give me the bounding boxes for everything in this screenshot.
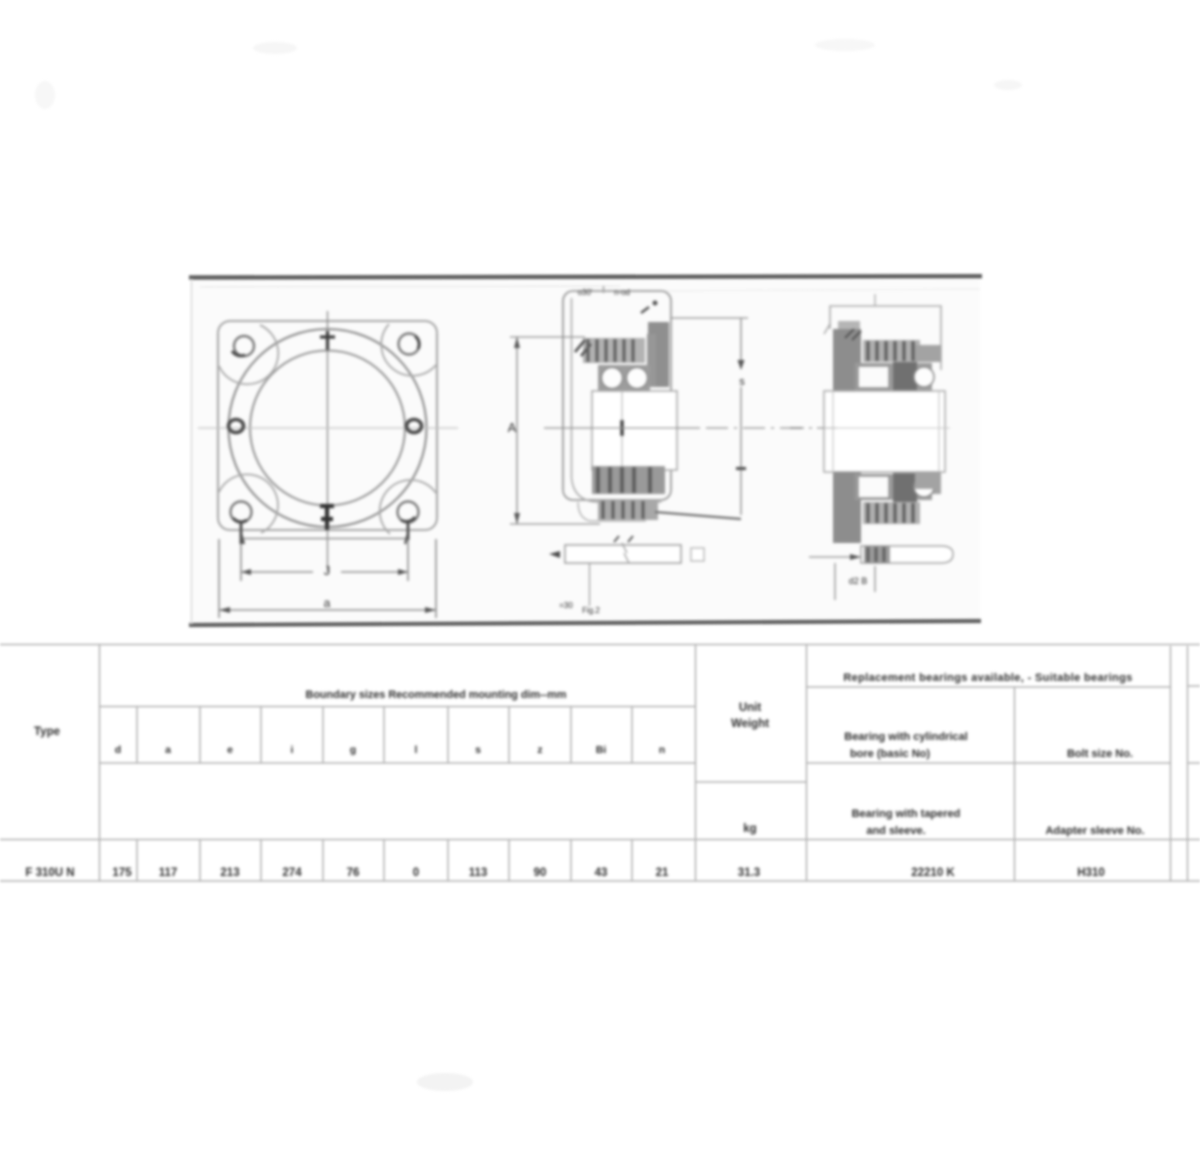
svg-text:Bearing with cylindrical: Bearing with cylindrical (844, 731, 967, 743)
svg-text:J: J (324, 563, 331, 578)
svg-text:90: 90 (534, 867, 547, 879)
svg-text:s: s (475, 744, 481, 756)
svg-text:274: 274 (282, 867, 302, 879)
svg-text:l: l (415, 744, 418, 756)
svg-text:n-od: n-od (614, 288, 630, 297)
svg-text:=30: =30 (559, 601, 573, 610)
svg-text:A: A (508, 420, 517, 435)
svg-text:76: 76 (347, 867, 360, 879)
svg-text:s: s (739, 376, 745, 388)
svg-text:31.3: 31.3 (738, 867, 760, 879)
svg-text:Weight: Weight (731, 718, 769, 730)
svg-text:Adapter sleeve No.: Adapter sleeve No. (1045, 825, 1144, 837)
svg-text:0: 0 (413, 867, 419, 879)
svg-text:kg: kg (743, 823, 756, 835)
svg-text:d2 B: d2 B (849, 576, 868, 586)
svg-text:21: 21 (656, 867, 669, 879)
svg-text:n: n (659, 744, 665, 756)
svg-text:117: 117 (159, 867, 178, 879)
svg-text:a: a (324, 596, 331, 610)
svg-text:F 310U N: F 310U N (25, 867, 74, 879)
svg-text:43: 43 (595, 867, 608, 879)
svg-text:Unit: Unit (739, 702, 762, 714)
svg-text:Bolt size No.: Bolt size No. (1067, 748, 1133, 760)
svg-text:Replacement bearings available: Replacement bearings available, - Suitab… (843, 672, 1132, 684)
svg-text:Fig.2: Fig.2 (582, 606, 600, 615)
svg-text:Boundary sizes Recommended mo: Boundary sizes Recommended mounting dim-… (306, 689, 567, 701)
svg-text:z: z (537, 744, 542, 756)
svg-text:g: g (350, 744, 356, 756)
svg-text:H310: H310 (1077, 867, 1105, 879)
svg-text:d: d (115, 744, 121, 756)
svg-text:175: 175 (112, 867, 132, 879)
svg-text:22210 K: 22210 K (911, 867, 955, 879)
svg-text:bore (basic No): bore (basic No) (850, 748, 930, 760)
svg-text:and sleeve.: and sleeve. (866, 825, 925, 837)
svg-text:o30': o30' (578, 288, 593, 297)
svg-text:213: 213 (220, 867, 239, 879)
svg-text:Bi: Bi (596, 744, 607, 756)
svg-text:Type: Type (34, 726, 60, 738)
svg-text:113: 113 (469, 867, 488, 879)
svg-text:Bearing with tapered: Bearing with tapered (852, 808, 961, 820)
svg-text:i: i (291, 744, 294, 756)
svg-text:a: a (165, 744, 171, 756)
svg-text:e: e (227, 744, 233, 756)
